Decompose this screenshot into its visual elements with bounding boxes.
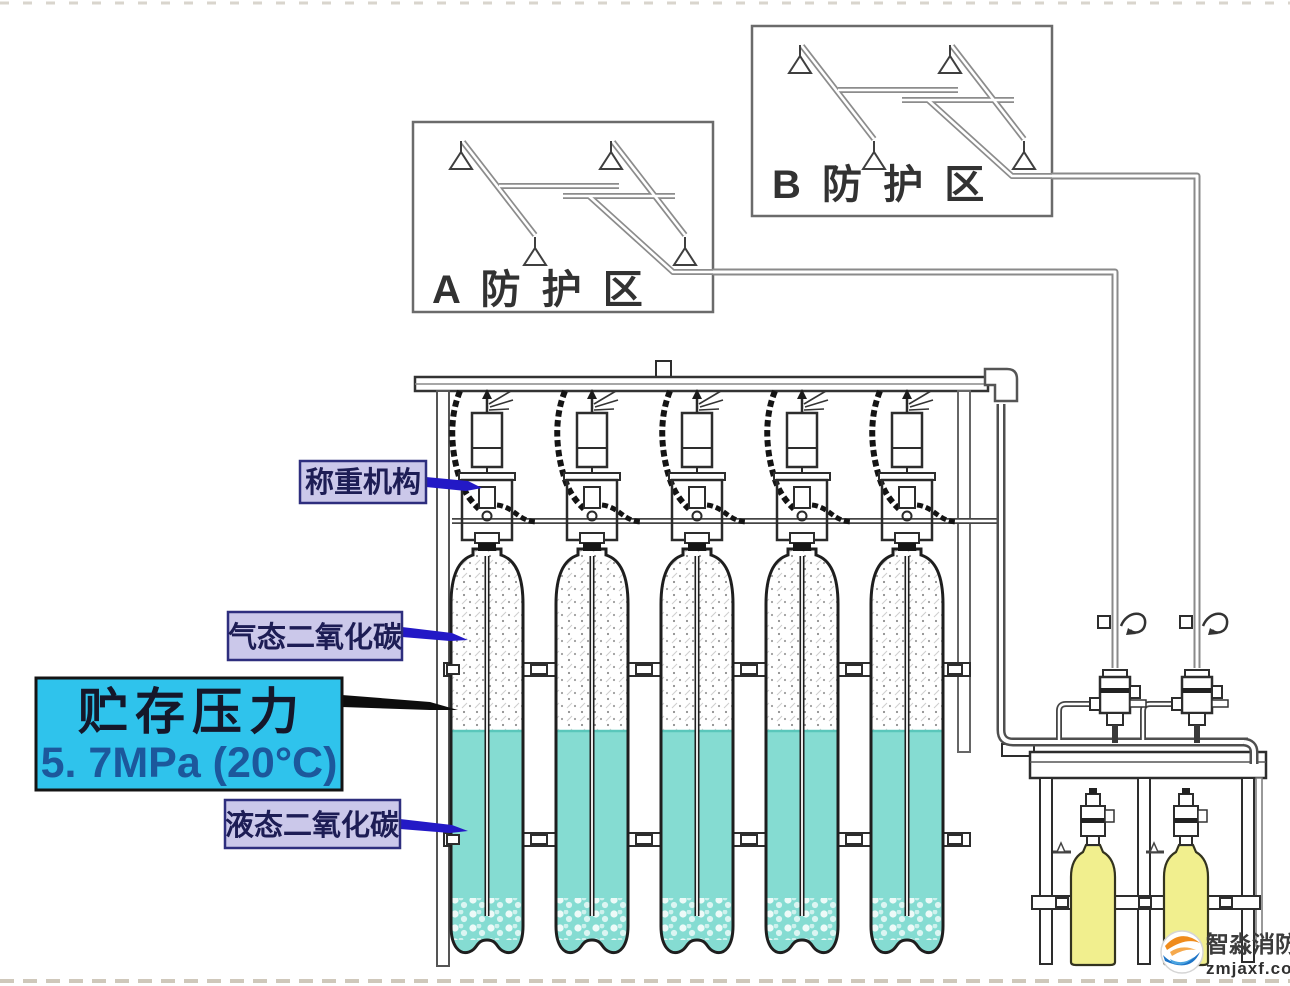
selector-valve-b: [1172, 670, 1228, 743]
selector-valve-a: [1090, 670, 1146, 743]
co2-cylinder-1: [451, 389, 537, 960]
co2-cylinder-3: [661, 389, 747, 960]
selector-valve-station: [1059, 614, 1228, 743]
callout-pressure: 贮存压力 5. 7MPa (20°C): [36, 678, 458, 790]
watermark-site: zmjaxf.com: [1206, 959, 1290, 978]
pressure-label-line1: 贮存压力: [78, 684, 306, 740]
weighing-label: 称重机构: [305, 466, 421, 499]
pressure-switch-b: [1180, 614, 1227, 635]
co2-system-diagram: A 防 护 区 B 防 护 区: [0, 0, 1290, 986]
pressure-switch-a: [1098, 614, 1145, 635]
watermark: 智淼消防 zmjaxf.com: [1161, 931, 1290, 978]
liquid-label: 液态二氧化碳: [225, 809, 400, 842]
co2-cylinder-5: [871, 389, 957, 960]
pipe-elbow-fitting: [985, 369, 1017, 401]
protection-zone-b: B 防 护 区: [752, 26, 1054, 216]
watermark-brand: 智淼消防: [1206, 931, 1290, 957]
callout-weighing: 称重机构: [300, 461, 482, 503]
protection-zone-a: A 防 护 区: [413, 122, 715, 312]
zone-b-label: B 防 护 区: [772, 163, 989, 207]
co2-cylinder-2: [556, 389, 642, 960]
zone-a-label: A 防 护 区: [432, 268, 648, 312]
zone-b-riser-pipe: [1052, 176, 1197, 668]
pilot-cylinder-1: [1053, 788, 1115, 965]
co2-cylinder-4: [766, 389, 852, 960]
callout-liquid: 液态二氧化碳: [225, 800, 468, 848]
pressure-label-line2: 5. 7MPa (20°C): [41, 739, 338, 787]
gas-label: 气态二氧化碳: [227, 621, 403, 654]
callout-gas: 气态二氧化碳: [227, 612, 468, 660]
